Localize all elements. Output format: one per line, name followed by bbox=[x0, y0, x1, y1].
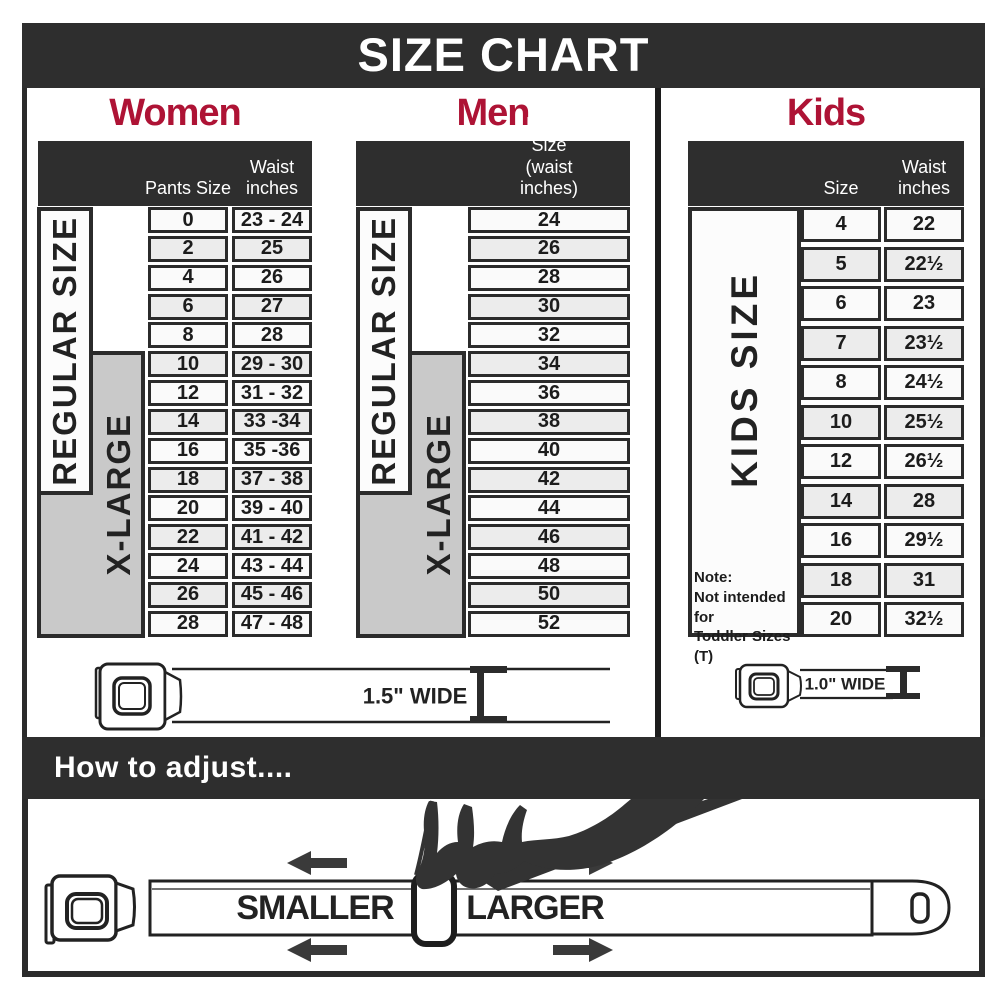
kids-size-rows: 422522½623723½824½1025½1226½14281629½183… bbox=[801, 207, 964, 637]
size-cell: 35 -36 bbox=[232, 438, 312, 464]
men-size-rows: 242628303234363840424446485052 bbox=[468, 207, 630, 637]
adult-belt-illustration: 1.5" WIDE bbox=[92, 650, 622, 734]
size-row: 1231 - 32 bbox=[148, 380, 312, 406]
women-section-title: Women bbox=[38, 92, 312, 138]
size-cell: 28 bbox=[468, 265, 630, 291]
size-cell: 47 - 48 bbox=[232, 611, 312, 637]
size-cell: 4 bbox=[801, 207, 881, 242]
kids-col-waist-inches: Waist inches bbox=[898, 157, 950, 199]
size-row: 30 bbox=[468, 294, 630, 320]
size-row: 2032½ bbox=[801, 602, 964, 637]
size-cell: 23½ bbox=[884, 326, 964, 361]
size-cell: 22½ bbox=[884, 247, 964, 282]
size-cell: 28 bbox=[232, 322, 312, 348]
size-cell: 24 bbox=[468, 207, 630, 233]
size-cell: 36 bbox=[468, 380, 630, 406]
size-cell: 16 bbox=[148, 438, 228, 464]
men-regular-label: REGULAR SIZE bbox=[365, 216, 403, 486]
size-row: 28 bbox=[468, 265, 630, 291]
size-cell: 26 bbox=[232, 265, 312, 291]
size-cell: 7 bbox=[801, 326, 881, 361]
size-row: 1025½ bbox=[801, 405, 964, 440]
size-cell: 8 bbox=[801, 365, 881, 400]
smaller-label: SMALLER bbox=[236, 889, 394, 927]
size-cell: 22 bbox=[884, 207, 964, 242]
size-row: 023 - 24 bbox=[148, 207, 312, 233]
size-cell: 34 bbox=[468, 351, 630, 377]
size-cell: 45 - 46 bbox=[232, 582, 312, 608]
size-row: 426 bbox=[148, 265, 312, 291]
arrow-right-icon bbox=[553, 938, 613, 962]
size-row: 2645 - 46 bbox=[148, 582, 312, 608]
size-cell: 48 bbox=[468, 553, 630, 579]
size-cell: 26 bbox=[468, 236, 630, 262]
women-regular-label: REGULAR SIZE bbox=[46, 216, 84, 486]
women-xlarge-label: X-LARGE bbox=[100, 413, 138, 576]
size-row: 2443 - 44 bbox=[148, 553, 312, 579]
seatbelt-buckle-icon bbox=[96, 664, 181, 729]
size-row: 52 bbox=[468, 611, 630, 637]
seatbelt-buckle-icon bbox=[736, 665, 801, 707]
size-cell: 29½ bbox=[884, 523, 964, 558]
size-cell: 33 -34 bbox=[232, 409, 312, 435]
kids-note: Note: Not intended for Toddler Sizes (T) bbox=[694, 568, 809, 667]
size-row: 2241 - 42 bbox=[148, 524, 312, 550]
size-cell: 0 bbox=[148, 207, 228, 233]
page-title: SIZE CHART bbox=[22, 23, 985, 88]
size-cell: 32½ bbox=[884, 602, 964, 637]
size-cell: 31 bbox=[884, 563, 964, 598]
size-cell: 14 bbox=[801, 484, 881, 519]
kids-size-label: KIDS SIZE bbox=[724, 271, 766, 488]
size-row: 2847 - 48 bbox=[148, 611, 312, 637]
size-cell: 20 bbox=[148, 495, 228, 521]
size-cell: 30 bbox=[468, 294, 630, 320]
size-row: 2039 - 40 bbox=[148, 495, 312, 521]
size-cell: 39 - 40 bbox=[232, 495, 312, 521]
men-col-pants-size: Pants Size (waist inches) bbox=[509, 114, 590, 199]
men-xlarge-label-strip: X-LARGE bbox=[412, 351, 466, 638]
size-cell: 28 bbox=[148, 611, 228, 637]
size-chart-page: SIZE CHART Women Men Kids Pants Size Wai… bbox=[0, 0, 1000, 1000]
women-col-waist-inches: Waist inches bbox=[246, 157, 298, 199]
size-cell: 6 bbox=[148, 294, 228, 320]
size-cell: 5 bbox=[801, 247, 881, 282]
size-cell: 52 bbox=[468, 611, 630, 637]
size-row: 522½ bbox=[801, 247, 964, 282]
width-indicator-icon bbox=[470, 666, 507, 723]
women-table-header: Pants Size Waist inches bbox=[38, 141, 312, 206]
kids-col-size: Size bbox=[823, 178, 858, 199]
size-row: 1029 - 30 bbox=[148, 351, 312, 377]
size-row: 1837 - 38 bbox=[148, 467, 312, 493]
size-cell: 16 bbox=[801, 523, 881, 558]
section-divider bbox=[655, 88, 661, 737]
size-row: 40 bbox=[468, 438, 630, 464]
adjust-section-heading: How to adjust.... bbox=[22, 737, 985, 799]
size-row: 824½ bbox=[801, 365, 964, 400]
size-cell: 10 bbox=[148, 351, 228, 377]
size-cell: 23 - 24 bbox=[232, 207, 312, 233]
size-cell: 27 bbox=[232, 294, 312, 320]
size-cell: 10 bbox=[801, 405, 881, 440]
size-cell: 24½ bbox=[884, 365, 964, 400]
size-row: 627 bbox=[148, 294, 312, 320]
size-cell: 22 bbox=[148, 524, 228, 550]
size-cell: 20 bbox=[801, 602, 881, 637]
size-cell: 40 bbox=[468, 438, 630, 464]
size-cell: 12 bbox=[801, 444, 881, 479]
size-cell: 2 bbox=[148, 236, 228, 262]
arrow-left-icon bbox=[287, 938, 347, 962]
size-row: 1433 -34 bbox=[148, 409, 312, 435]
size-cell: 24 bbox=[148, 553, 228, 579]
women-xlarge-label-strip: X-LARGE bbox=[93, 351, 145, 638]
size-row: 26 bbox=[468, 236, 630, 262]
size-row: 828 bbox=[148, 322, 312, 348]
size-cell: 23 bbox=[884, 286, 964, 321]
larger-label: LARGER bbox=[466, 889, 604, 927]
women-size-rows: 023 - 242254266278281029 - 301231 - 3214… bbox=[148, 207, 312, 637]
size-cell: 50 bbox=[468, 582, 630, 608]
kids-table-header: Size Waist inches bbox=[688, 141, 964, 206]
men-xlarge-label: X-LARGE bbox=[420, 413, 458, 576]
size-row: 38 bbox=[468, 409, 630, 435]
size-cell: 41 - 42 bbox=[232, 524, 312, 550]
size-row: 1629½ bbox=[801, 523, 964, 558]
arrow-left-icon bbox=[287, 851, 347, 875]
size-row: 1226½ bbox=[801, 444, 964, 479]
size-cell: 18 bbox=[148, 467, 228, 493]
size-row: 48 bbox=[468, 553, 630, 579]
size-row: 36 bbox=[468, 380, 630, 406]
size-cell: 6 bbox=[801, 286, 881, 321]
size-cell: 26 bbox=[148, 582, 228, 608]
kids-belt-width-label: 1.0" WIDE bbox=[805, 675, 886, 694]
size-cell: 31 - 32 bbox=[232, 380, 312, 406]
size-row: 623 bbox=[801, 286, 964, 321]
kids-belt-illustration: 1.0" WIDE bbox=[730, 655, 930, 710]
size-row: 1831 bbox=[801, 563, 964, 598]
size-cell: 38 bbox=[468, 409, 630, 435]
size-cell: 8 bbox=[148, 322, 228, 348]
seatbelt-buckle-icon bbox=[46, 876, 135, 943]
size-cell: 42 bbox=[468, 467, 630, 493]
adult-belt-width-label: 1.5" WIDE bbox=[363, 684, 468, 709]
size-cell: 18 bbox=[801, 563, 881, 598]
kids-section-title: Kids bbox=[688, 92, 964, 138]
size-cell: 4 bbox=[148, 265, 228, 291]
size-row: 225 bbox=[148, 236, 312, 262]
size-row: 1635 -36 bbox=[148, 438, 312, 464]
size-row: 50 bbox=[468, 582, 630, 608]
size-row: 42 bbox=[468, 467, 630, 493]
size-cell: 14 bbox=[148, 409, 228, 435]
size-cell: 29 - 30 bbox=[232, 351, 312, 377]
size-row: 34 bbox=[468, 351, 630, 377]
size-cell: 26½ bbox=[884, 444, 964, 479]
size-cell: 28 bbox=[884, 484, 964, 519]
women-col-pants-size: Pants Size bbox=[145, 178, 231, 199]
hand-icon bbox=[416, 799, 704, 889]
size-cell: 25 bbox=[232, 236, 312, 262]
men-table-header: Pants Size (waist inches) bbox=[356, 141, 630, 206]
width-indicator-icon bbox=[886, 666, 920, 699]
size-row: 44 bbox=[468, 495, 630, 521]
size-row: 46 bbox=[468, 524, 630, 550]
size-cell: 44 bbox=[468, 495, 630, 521]
adjust-illustration: SMALLER LARGER bbox=[28, 799, 979, 971]
size-cell: 32 bbox=[468, 322, 630, 348]
size-cell: 12 bbox=[148, 380, 228, 406]
kids-size-label-strip: KIDS SIZE bbox=[688, 207, 801, 552]
size-row: 32 bbox=[468, 322, 630, 348]
size-row: 1428 bbox=[801, 484, 964, 519]
size-row: 723½ bbox=[801, 326, 964, 361]
women-regular-band: REGULAR SIZE bbox=[37, 207, 93, 495]
size-cell: 25½ bbox=[884, 405, 964, 440]
size-cell: 43 - 44 bbox=[232, 553, 312, 579]
size-cell: 37 - 38 bbox=[232, 467, 312, 493]
belt-tip bbox=[872, 881, 949, 934]
men-regular-band: REGULAR SIZE bbox=[356, 207, 412, 495]
size-row: 24 bbox=[468, 207, 630, 233]
size-cell: 46 bbox=[468, 524, 630, 550]
size-row: 422 bbox=[801, 207, 964, 242]
